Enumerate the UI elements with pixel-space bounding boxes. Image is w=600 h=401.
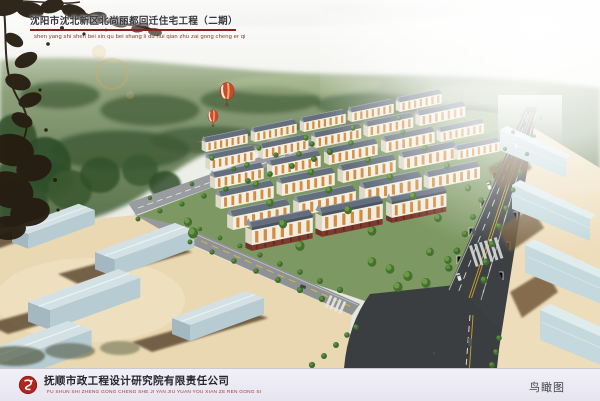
title-underline — [30, 29, 236, 31]
aerial-rendering — [0, 0, 600, 401]
footer-bar: 抚顺市政工程设计研究院有限责任公司 FU SHUN SHI ZHENG GONG… — [0, 368, 600, 401]
company-pinyin: FU SHUN SHI ZHENG GONG CHENG SHE JI YAN … — [47, 390, 261, 395]
rendering-board: 沈阳市沈北新区北尚丽都回迁住宅工程（二期） shen yang shi shen… — [0, 0, 600, 401]
road-haze — [498, 95, 562, 147]
company-block: 抚顺市政工程设计研究院有限责任公司 FU SHUN SHI ZHENG GONG… — [44, 373, 261, 395]
project-title: 沈阳市沈北新区北尚丽都回迁住宅工程（二期） — [30, 13, 246, 27]
title-block: 沈阳市沈北新区北尚丽都回迁住宅工程（二期） shen yang shi shen… — [30, 13, 246, 40]
company-logo-icon — [17, 374, 39, 396]
view-type-label: 鸟瞰图 — [529, 379, 565, 395]
company-name: 抚顺市政工程设计研究院有限责任公司 — [44, 373, 261, 388]
project-title-pinyin: shen yang shi shen bei xin qu bei shang … — [34, 34, 246, 40]
